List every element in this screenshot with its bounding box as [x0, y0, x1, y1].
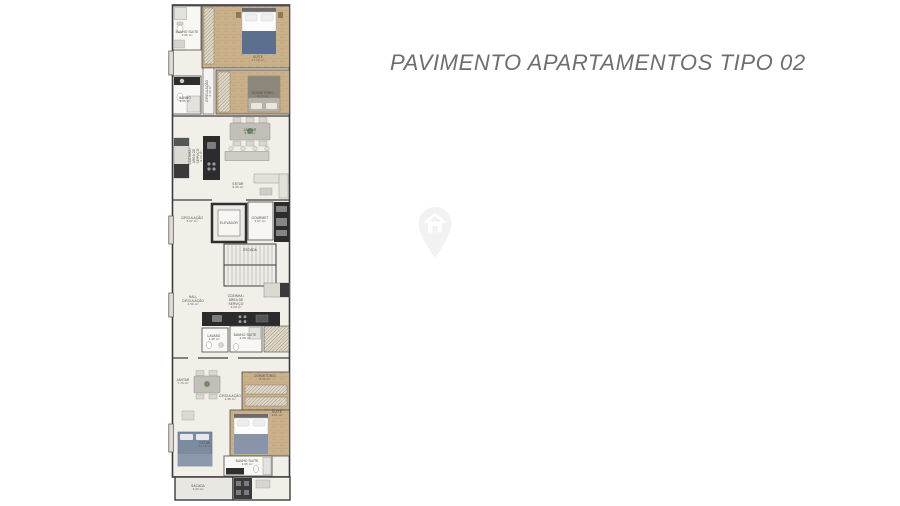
room-label-jantar-1: JANTAR8.40 m² — [244, 128, 257, 136]
suite-1-bed — [236, 8, 283, 54]
room-label-cozinha-area-servico-2: COZINHA / ÁREA DE SERVIÇO9.00 m² — [224, 294, 248, 310]
room-label-estar-2: ESTAR14.18 m² — [199, 441, 212, 449]
room-label-circulacao-3: CIRCULAÇÃO1.35 m² — [218, 394, 242, 402]
room-label-escada: ESCADA — [243, 248, 257, 252]
room-label-banho-suite-3: BANHO SUITE3.05 m² — [235, 459, 259, 467]
floor-plan: BANHO SUITE3.66 m² SUITE17.70 m² CIRCULA… — [168, 4, 292, 502]
room-label-estar-1: ESTAR9.36 m² — [233, 182, 244, 190]
room-label-suite-1: SUITE17.70 m² — [252, 55, 265, 63]
banho-1-room — [173, 76, 201, 114]
room-label-lavabo: LAVABO1.48 m² — [208, 334, 221, 342]
room-label-banho-suite-1: BANHO SUITE3.66 m² — [175, 30, 199, 38]
banho-suite-1-room — [173, 6, 201, 50]
room-label-dormitorio-2: DORMITÓRIO8.01 m² — [254, 374, 276, 382]
room-label-dormitorio-1: DORMITÓRIO8.21 m² — [252, 91, 274, 99]
room-label-jantar-2: JANTAR7.70 m² — [177, 378, 190, 386]
page-title: PAVIMENTO APARTAMENTOS TIPO 02 — [390, 50, 806, 76]
page: { "title": "PAVIMENTO APARTAMENTOS TIPO … — [0, 0, 900, 506]
room-label-sacada: SACADA3.20 m² — [191, 484, 205, 492]
room-label-circulacao-1: CIRCULAÇÃO2.16 m² — [205, 80, 213, 102]
room-label-cozinha-area-servico-1: COZINHA / ÁREA DE SERVIÇO9.23 m² — [188, 144, 204, 168]
room-label-hall-circulacao: HALL CIRCULAÇÃO4.59 m² — [181, 295, 205, 307]
room-label-elevador: ELEVADOR — [220, 221, 238, 225]
floor-plan-drawing — [168, 4, 292, 502]
location-pin-house-icon — [417, 206, 453, 260]
room-label-banho-1: BANHO3.05 m² — [179, 96, 191, 104]
room-label-banho-suite-2: BANHO SUITE2.28 m² — [233, 333, 257, 341]
room-label-gourmet: GOURMET3.07 m² — [252, 216, 269, 224]
room-label-suite-2: SUITE9.01 m² — [272, 410, 283, 418]
room-label-circulacao-2: CIRCULAÇÃO5.67 m² — [181, 216, 203, 224]
